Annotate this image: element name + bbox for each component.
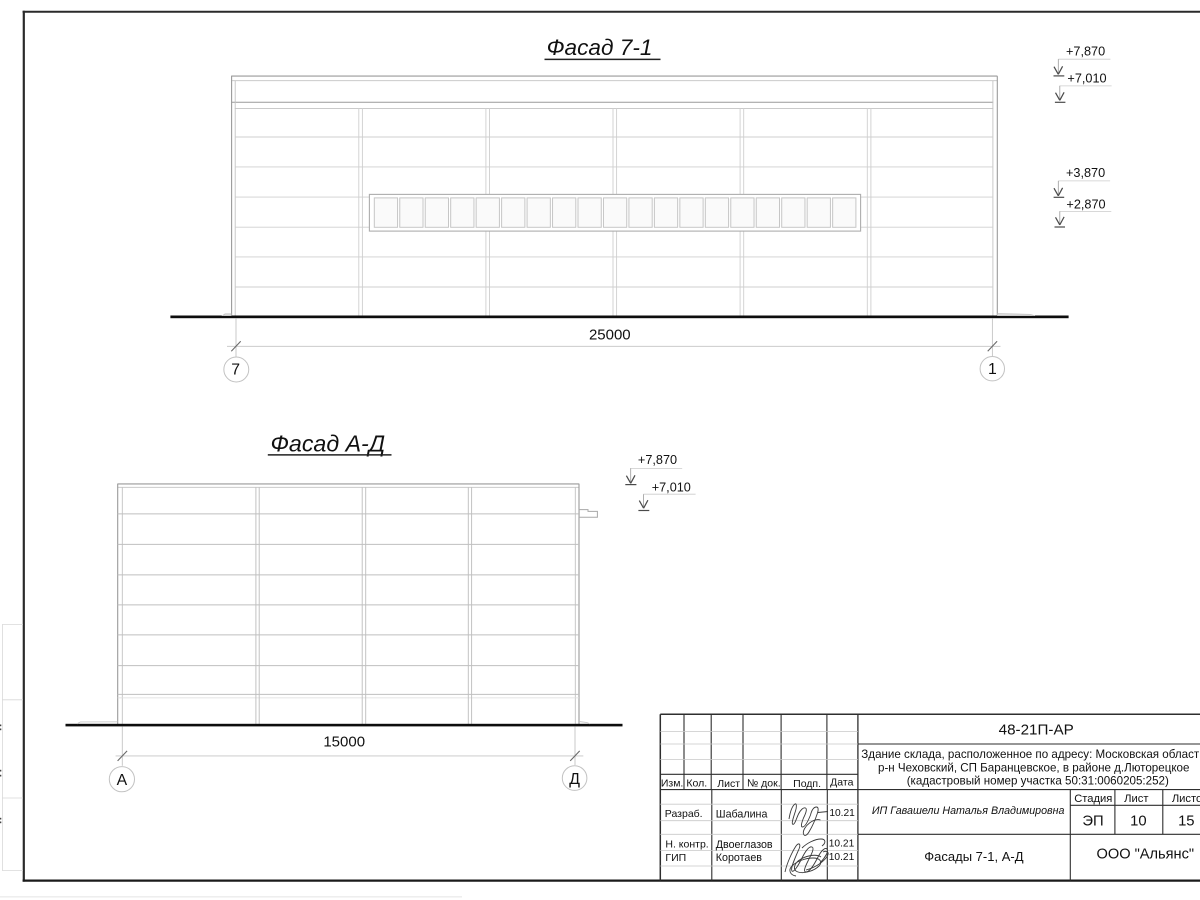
svg-text:Фасад 7-1: Фасад 7-1 [547,35,653,60]
svg-text:7: 7 [231,361,240,378]
svg-text:Лист: Лист [1124,793,1148,805]
svg-text:ГИП: ГИП [665,852,686,864]
svg-text:№ док.: № док. [747,778,781,790]
svg-text:+7,010: +7,010 [652,480,691,494]
svg-text:Д: Д [569,771,580,788]
svg-text:1: 1 [988,361,997,378]
svg-text:ООО "Альянс": ООО "Альянс" [1097,846,1195,862]
svg-text:+3,870: +3,870 [1066,166,1105,180]
svg-text:Подп.: Подп. [793,778,821,790]
svg-text:ЭП: ЭП [1082,814,1103,830]
svg-text:25000: 25000 [589,327,631,344]
svg-text:10: 10 [1130,814,1146,830]
svg-text:Стадия: Стадия [1074,793,1112,805]
svg-text:Коротаев: Коротаев [716,852,762,864]
svg-text:А: А [117,772,128,789]
svg-text:+7,010: +7,010 [1067,71,1106,85]
svg-text:Двоеглазов: Двоеглазов [716,839,773,851]
svg-text:Фасады 7-1, А-Д: Фасады 7-1, А-Д [924,849,1023,864]
svg-text:Разраб.: Разраб. [665,808,703,820]
svg-text:Здание склада, расположенное п: Здание склада, расположенное по адресу: … [861,748,1200,761]
svg-text:+7,870: +7,870 [638,453,677,467]
svg-text:Лист: Лист [717,778,740,790]
svg-text:р-н Чеховский, СП Баранцевское: р-н Чеховский, СП Баранцевское, в районе… [878,761,1189,774]
svg-text:48-21П-АР: 48-21П-АР [999,721,1074,738]
svg-text:15000: 15000 [323,733,365,750]
svg-text:+7,870: +7,870 [1066,44,1105,58]
svg-text:Листов: Листов [1172,793,1200,805]
svg-text:15: 15 [1178,814,1194,830]
svg-text:10.21: 10.21 [829,838,855,849]
svg-text:Дата: Дата [830,777,853,789]
svg-text:Н. контр.: Н. контр. [665,839,708,851]
svg-text:(кадастровый номер участка 50:: (кадастровый номер участка 50:31:0060205… [907,775,1169,788]
svg-text:ИП Гавашели Наталья Владимиров: ИП Гавашели Наталья Владимировна [872,805,1065,817]
svg-text:+2,870: +2,870 [1066,197,1105,211]
svg-text:Шабалина: Шабалина [716,808,768,820]
svg-text:10.21: 10.21 [829,808,855,819]
svg-text:Изм.: Изм. [661,778,684,790]
svg-text:Кол.: Кол. [686,778,707,790]
svg-text:Фасад А-Д: Фасад А-Д [271,431,386,457]
svg-text:10.21: 10.21 [829,852,855,863]
